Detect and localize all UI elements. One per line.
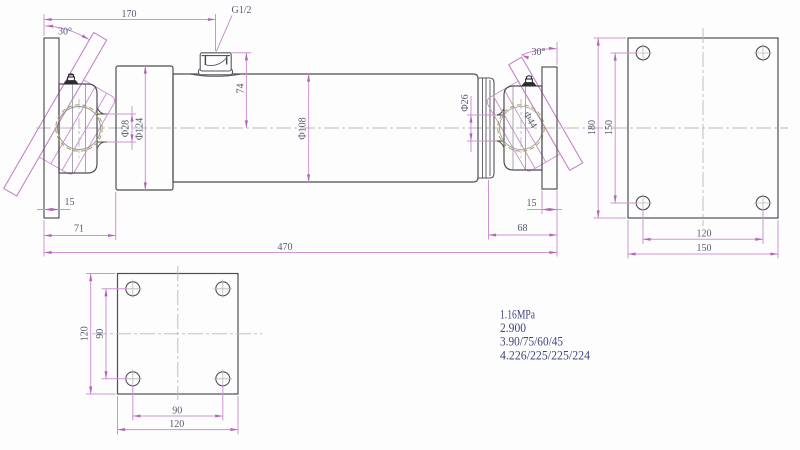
svg-text:15: 15 bbox=[527, 198, 537, 209]
svg-text:1.16MPa: 1.16MPa bbox=[500, 308, 535, 322]
svg-text:180: 180 bbox=[587, 120, 598, 135]
svg-text:90: 90 bbox=[172, 406, 182, 417]
svg-text:30°: 30° bbox=[58, 27, 72, 38]
svg-text:120: 120 bbox=[169, 419, 184, 430]
svg-text:Φ124: Φ124 bbox=[134, 118, 145, 140]
svg-text:Φ26: Φ26 bbox=[460, 94, 471, 111]
svg-text:170: 170 bbox=[122, 9, 137, 20]
svg-text:4.226/225/225/224: 4.226/225/225/224 bbox=[500, 349, 591, 363]
svg-text:71: 71 bbox=[74, 224, 84, 235]
svg-text:150: 150 bbox=[697, 243, 712, 254]
svg-text:Φ28: Φ28 bbox=[121, 120, 132, 137]
svg-text:3.90/75/60/45: 3.90/75/60/45 bbox=[500, 335, 563, 349]
svg-text:120: 120 bbox=[80, 326, 91, 341]
svg-text:120: 120 bbox=[697, 228, 712, 239]
svg-text:68: 68 bbox=[518, 223, 528, 234]
svg-text:90: 90 bbox=[95, 329, 106, 339]
svg-text:470: 470 bbox=[278, 242, 293, 253]
svg-text:Φ108: Φ108 bbox=[297, 117, 308, 139]
svg-text:150: 150 bbox=[604, 120, 615, 135]
svg-text:30°: 30° bbox=[532, 47, 546, 58]
svg-text:G1/2: G1/2 bbox=[232, 5, 252, 16]
svg-text:2.900: 2.900 bbox=[500, 321, 526, 335]
svg-text:15: 15 bbox=[65, 197, 75, 208]
svg-text:74: 74 bbox=[236, 84, 247, 94]
